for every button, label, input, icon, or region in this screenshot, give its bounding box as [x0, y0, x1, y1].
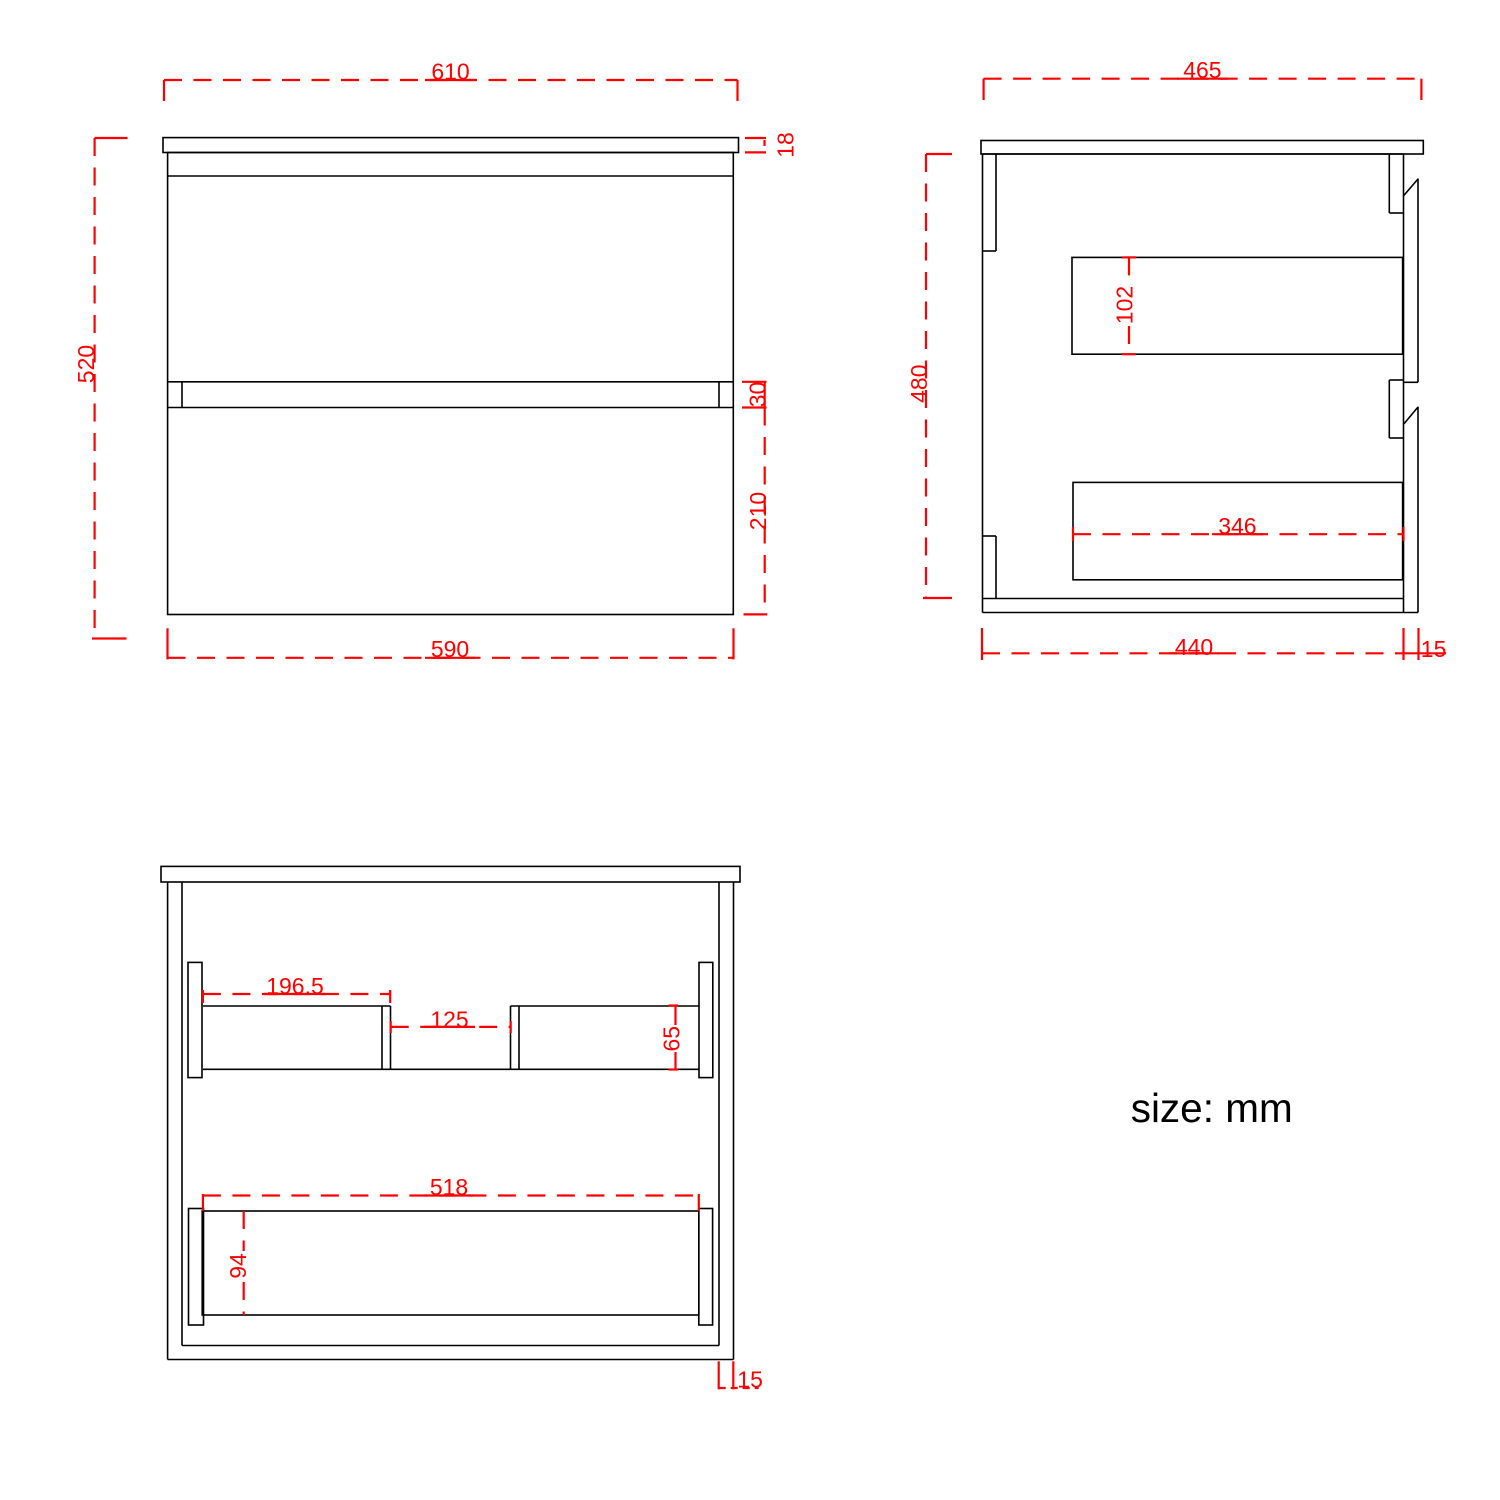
svg-text:440: 440 [1175, 634, 1213, 660]
svg-text:520: 520 [73, 345, 99, 383]
svg-text:590: 590 [431, 636, 469, 662]
svg-text:518: 518 [430, 1174, 468, 1200]
svg-text:210: 210 [745, 492, 771, 530]
svg-text:15: 15 [737, 1366, 763, 1392]
svg-text:610: 610 [431, 59, 469, 85]
svg-text:18: 18 [772, 132, 798, 158]
svg-text:196.5: 196.5 [266, 973, 324, 999]
svg-text:94: 94 [225, 1253, 251, 1279]
svg-text:102: 102 [1111, 286, 1137, 324]
svg-text:size: mm: size: mm [1131, 1085, 1293, 1131]
svg-text:30: 30 [745, 382, 771, 408]
svg-text:65: 65 [659, 1026, 685, 1052]
svg-text:465: 465 [1183, 57, 1221, 83]
svg-text:15: 15 [1421, 636, 1447, 662]
svg-text:125: 125 [430, 1007, 468, 1033]
svg-text:346: 346 [1218, 513, 1256, 539]
svg-text:480: 480 [906, 365, 932, 403]
